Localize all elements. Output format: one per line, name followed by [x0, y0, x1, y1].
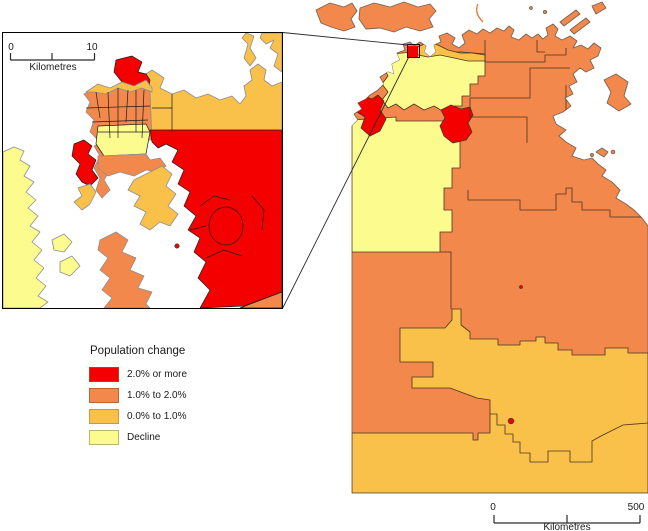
islet [591, 154, 594, 157]
main-scale-start: 0 [490, 502, 496, 513]
legend: Population change 2.0% or more 1.0% to 2… [89, 345, 187, 450]
wessel-islands [560, 10, 580, 26]
cobourg-sliver [477, 4, 483, 22]
inset-paleyellow-block [96, 124, 150, 156]
bathurst-island [316, 3, 357, 31]
legend-title: Population change [90, 345, 187, 357]
legend-item: 2.0% or more [89, 366, 187, 383]
legend-swatch-amber [89, 409, 119, 424]
region-red-darwin-city [408, 46, 418, 57]
islet [611, 150, 615, 154]
groote-eylandt [604, 74, 631, 111]
callout-line-top [283, 33, 408, 46]
melville-island [359, 2, 436, 32]
inset-scale-unit: Kilometres [29, 62, 76, 73]
legend-swatch-orange [89, 388, 119, 403]
inset-scale-end: 10 [86, 42, 98, 53]
legend-swatch-yellow [89, 430, 119, 445]
legend-item: 1.0% to 2.0% [89, 387, 187, 404]
inset-red-dot [175, 244, 179, 248]
legend-swatch-red [89, 367, 119, 382]
dot-alice-springs [508, 418, 514, 424]
dot-tennant-creek [519, 285, 522, 288]
inset-scale-start: 0 [8, 42, 14, 53]
inset-map: 0 10 Kilometres [3, 33, 283, 309]
legend-item-label: 0.0% to 1.0% [127, 411, 186, 422]
islet [530, 7, 533, 10]
main-scale-end: 500 [628, 502, 645, 513]
wessel-islands-2 [570, 18, 590, 34]
legend-item-label: 1.0% to 2.0% [127, 390, 186, 401]
legend-item-label: Decline [127, 432, 160, 443]
main-map [316, 2, 648, 493]
legend-item: 0.0% to 1.0% [89, 408, 187, 425]
population-change-map-figure: 0 10 Kilometres 0 500 Kilometres Populat… [0, 0, 648, 531]
main-scalebar: 0 500 Kilometres [490, 502, 645, 531]
island-ne [592, 2, 606, 14]
legend-item: Decline [89, 429, 187, 446]
legend-item-label: 2.0% or more [127, 369, 187, 380]
pellew-island [596, 148, 608, 157]
islet [543, 10, 546, 13]
map-canvas: 0 10 Kilometres 0 500 Kilometres [0, 0, 648, 531]
main-scale-unit: Kilometres [543, 522, 590, 531]
